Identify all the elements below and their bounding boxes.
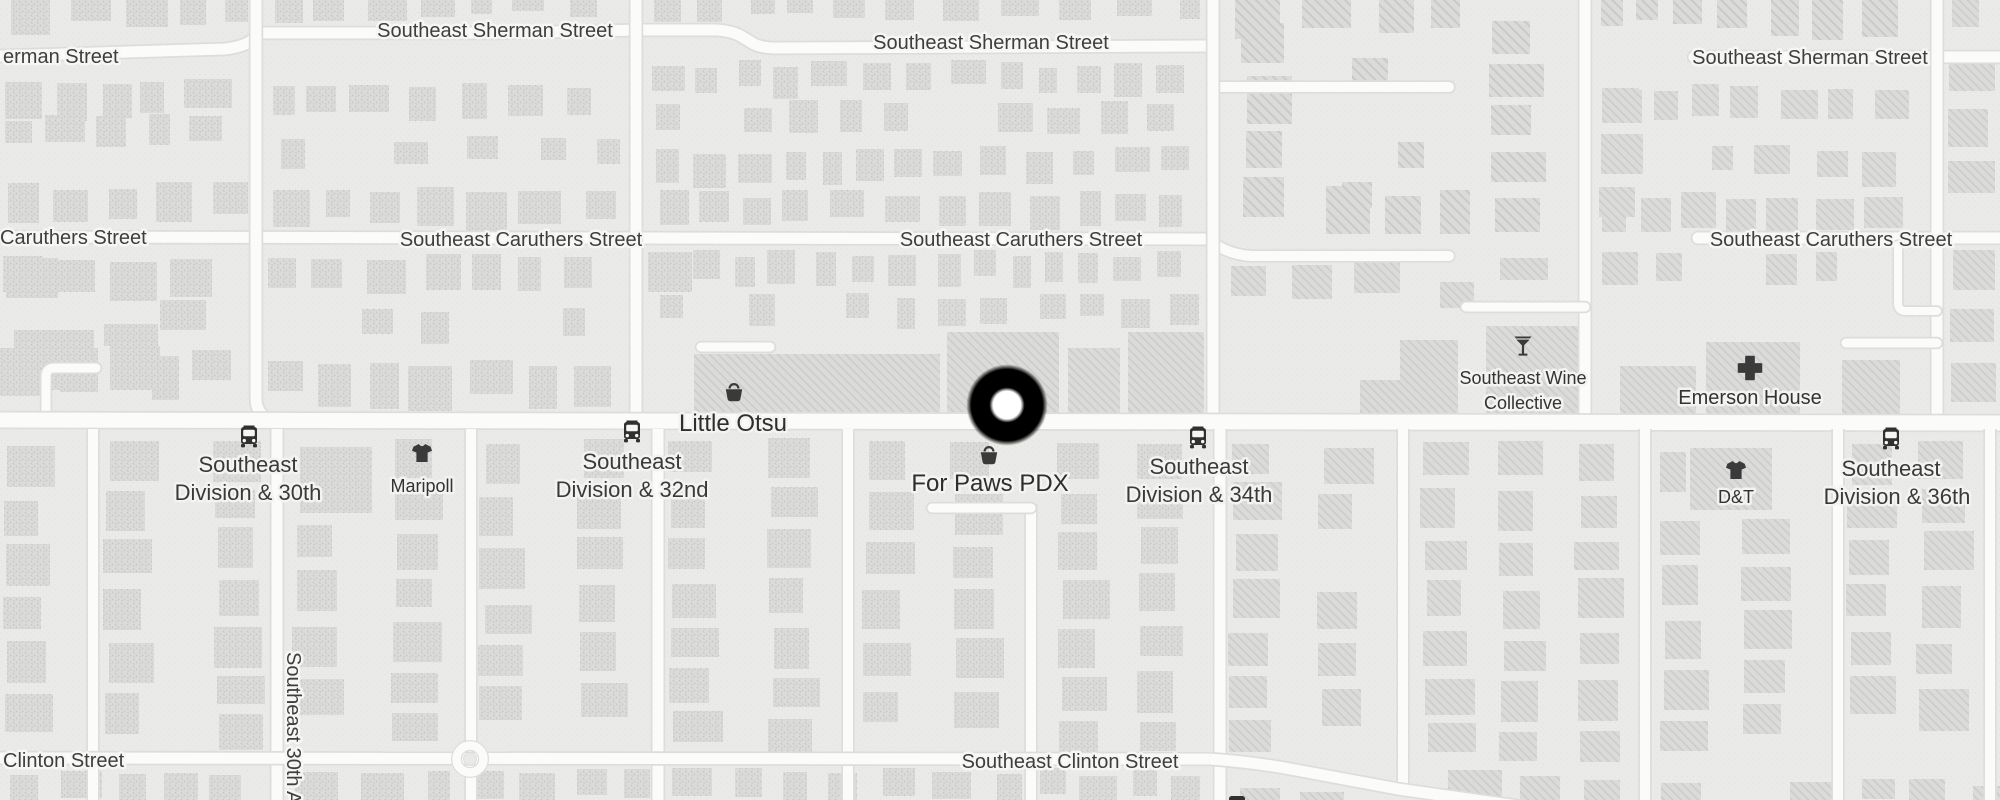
svg-text:Southeast 30th Avenue: Southeast 30th Avenue bbox=[282, 652, 304, 800]
svg-text:Division & 36th: Division & 36th bbox=[1824, 484, 1971, 509]
svg-text:Southeast Caruthers Street: Southeast Caruthers Street bbox=[1710, 229, 1953, 251]
svg-text:Division & 30th: Division & 30th bbox=[175, 480, 322, 505]
svg-text:Southeast: Southeast bbox=[198, 452, 297, 477]
svg-text:Southeast: Southeast bbox=[1841, 456, 1940, 481]
svg-text:D&T: D&T bbox=[1718, 487, 1754, 507]
svg-text:Emerson House: Emerson House bbox=[1678, 387, 1821, 409]
svg-text:Southeast Sherman Street: Southeast Sherman Street bbox=[873, 32, 1109, 54]
svg-text:Maripoll: Maripoll bbox=[390, 476, 453, 496]
svg-text:Division & 32nd: Division & 32nd bbox=[556, 477, 709, 502]
svg-text:Southeast: Southeast bbox=[1149, 454, 1248, 479]
svg-text:For Paws PDX: For Paws PDX bbox=[911, 470, 1068, 497]
svg-text:Collective: Collective bbox=[1484, 393, 1562, 413]
svg-text:erman Street: erman Street bbox=[3, 46, 119, 68]
svg-text:Little Otsu: Little Otsu bbox=[679, 410, 787, 437]
svg-text:Southeast Sherman Street: Southeast Sherman Street bbox=[1692, 47, 1928, 69]
svg-text:Southeast Caruthers Street: Southeast Caruthers Street bbox=[900, 229, 1143, 251]
svg-text:Division & 34th: Division & 34th bbox=[1126, 482, 1273, 507]
svg-text:Southeast Clinton Street: Southeast Clinton Street bbox=[962, 751, 1179, 773]
svg-text:Caruthers Street: Caruthers Street bbox=[0, 227, 147, 249]
svg-text:Southeast Sherman Street: Southeast Sherman Street bbox=[377, 20, 613, 42]
svg-text:Southeast Wine: Southeast Wine bbox=[1459, 368, 1586, 388]
svg-text:Southeast Caruthers Street: Southeast Caruthers Street bbox=[400, 229, 643, 251]
svg-text:Southeast: Southeast bbox=[582, 449, 681, 474]
svg-text:Clinton Street: Clinton Street bbox=[3, 750, 125, 772]
